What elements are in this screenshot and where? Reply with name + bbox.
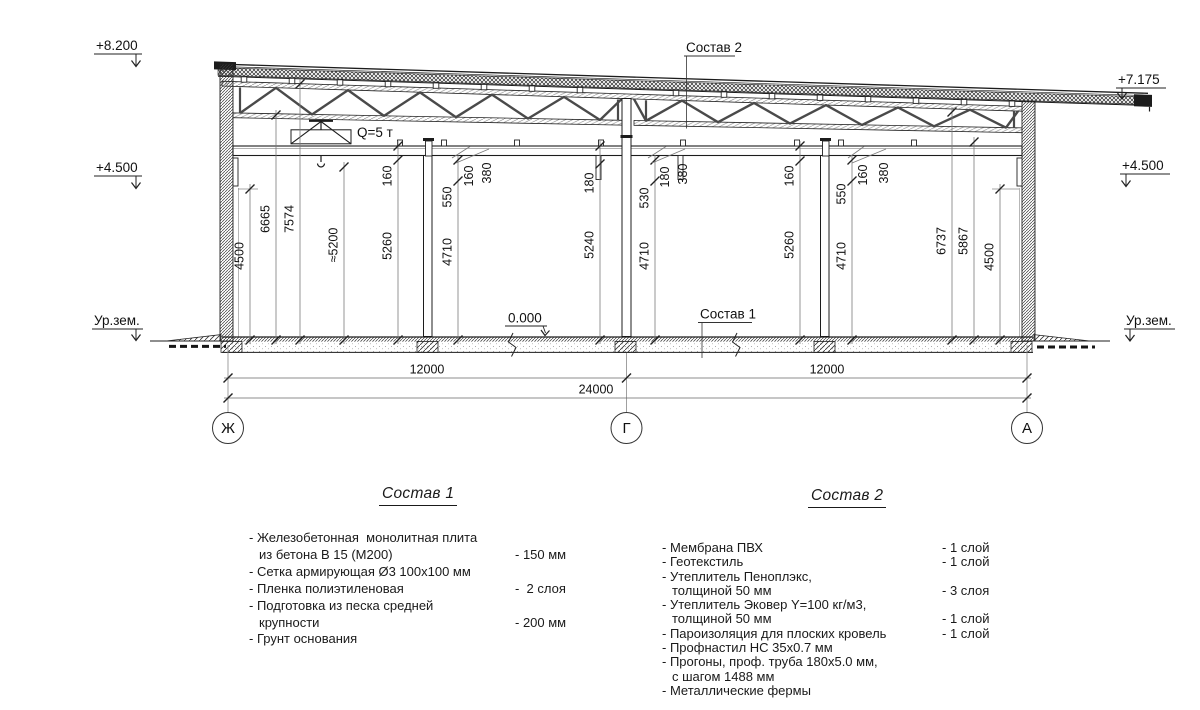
item-text: - Грунт основания (249, 631, 515, 648)
dim-label: 4710 (835, 242, 849, 270)
elevation-top-left: +8.200 (94, 38, 142, 67)
item-value: - 1 слой (942, 627, 999, 641)
item-value (515, 564, 572, 581)
list-item: толщиной 50 мм- 1 слой (662, 612, 999, 626)
axis-label-left: Ж (221, 420, 235, 437)
callout-label: Состав 1 (700, 307, 756, 322)
list-item: - Сетка армирующая Ø3 100х100 мм (249, 564, 572, 581)
list-item: - Пленка полиэтиленовая- 2 слоя (249, 581, 572, 598)
list-item: - Грунт основания (249, 631, 572, 648)
elevation-value: +4.500 (96, 160, 138, 175)
elevation-value: Ур.зем. (94, 313, 140, 328)
dim-label: 5260 (381, 232, 395, 260)
column-right (821, 156, 830, 337)
item-value (942, 598, 999, 612)
columns (423, 99, 831, 337)
item-text: - Металлические фермы (662, 684, 942, 698)
roof-edge-cap (1134, 94, 1152, 107)
list-item: - Утеплитель Пеноплэкс, (662, 570, 999, 584)
dim-label: 5260 (783, 231, 797, 259)
axis-label-right: А (1022, 420, 1032, 437)
item-value: - 200 мм (515, 615, 572, 632)
floor-slab (221, 333, 1033, 357)
sostav1-title: Состав 1 (379, 485, 457, 506)
column-left (424, 156, 433, 337)
dim-label: 160 (856, 165, 870, 186)
wall-right (1022, 101, 1035, 341)
list-item: - Утеплитель Эковер Y=100 кг/м3, (662, 598, 999, 612)
horizontal-dimensions: 12000 12000 24000 (224, 363, 1032, 403)
callout-zero-level: 0.000 (505, 311, 550, 336)
item-value: - 1 слой (942, 541, 999, 555)
item-text: - Пленка полиэтиленовая (249, 581, 515, 598)
grid-axes: Ж Г А (213, 345, 1043, 444)
list-item: - Прогоны, проф. труба 180х5.0 мм, (662, 655, 999, 669)
beam-fixings (398, 140, 917, 146)
dim-label: 5240 (583, 231, 597, 259)
dim-span-right: 12000 (810, 363, 845, 377)
sostav1-list: - Железобетонная монолитная плита из бет… (249, 530, 572, 648)
elevation-ground-right: Ур.зем. (1124, 313, 1175, 341)
dim-label: 180 (658, 167, 672, 188)
dim-total: 24000 (579, 383, 614, 397)
crane-hoist: Q=5 т (291, 121, 393, 167)
item-value (942, 570, 999, 584)
item-value: - 1 слой (942, 612, 999, 626)
item-text: толщиной 50 мм (662, 584, 942, 598)
item-value: - 3 слоя (942, 584, 999, 598)
item-text: крупности (249, 615, 515, 632)
dim-label: 7574 (283, 205, 297, 233)
elevation-value: Ур.зем. (1126, 313, 1172, 328)
dim-label: 4710 (638, 242, 652, 270)
list-item: - Профнастил НС 35х0.7 мм (662, 641, 999, 655)
dim-label: 4710 (441, 238, 455, 266)
item-text: с шагом 1488 мм (662, 670, 942, 684)
item-value (942, 684, 999, 698)
column-middle (622, 99, 631, 337)
item-value: - 2 слоя (515, 581, 572, 598)
dim-label: 4500 (233, 242, 247, 270)
dim-label: 160 (783, 166, 797, 187)
dim-label: 550 (835, 184, 849, 205)
item-text: - Профнастил НС 35х0.7 мм (662, 641, 942, 655)
item-text: - Утеплитель Эковер Y=100 кг/м3, (662, 598, 942, 612)
sostav2-list: - Мембрана ПВХ- 1 слой - Геотекстиль- 1 … (662, 541, 999, 698)
elevation-value: +7.175 (1118, 72, 1160, 87)
crane-capacity-label: Q=5 т (357, 125, 393, 140)
item-text: из бетона В 15 (М200) (249, 547, 515, 564)
list-item: из бетона В 15 (М200)- 150 мм (249, 547, 572, 564)
dim-label: 5867 (957, 227, 971, 255)
item-value (515, 530, 572, 547)
dim-label: 380 (877, 163, 891, 184)
item-value (942, 655, 999, 669)
dim-span-left: 12000 (410, 363, 445, 377)
elevation-value: +8.200 (96, 38, 138, 53)
truss-bottom-chord-right (634, 121, 1022, 133)
blueprint-page: Q=5 т Ж Г А 12000 (0, 0, 1200, 710)
elevation-value: +4.500 (1122, 158, 1164, 173)
list-item: с шагом 1488 мм (662, 670, 999, 684)
axis-label-middle: Г (622, 420, 630, 437)
dim-label: 160 (462, 166, 476, 187)
item-text: - Пароизоляция для плоских кровель (662, 627, 942, 641)
item-value (942, 641, 999, 655)
dim-label: 550 (441, 187, 455, 208)
dim-label: 380 (676, 164, 690, 185)
item-text: - Железобетонная монолитная плита (249, 530, 515, 547)
list-item: - Железобетонная монолитная плита (249, 530, 572, 547)
dim-label: 530 (638, 188, 652, 209)
item-text: - Мембрана ПВХ (662, 541, 942, 555)
elevation-ground-left: Ур.зем. (92, 313, 143, 341)
callout-label: 0.000 (508, 311, 542, 326)
sostav2-title: Состав 2 (808, 487, 886, 508)
elevation-mid-right: +4.500 (1120, 158, 1170, 187)
list-item: крупности- 200 мм (249, 615, 572, 632)
list-item: - Металлические фермы (662, 684, 999, 698)
callout-label: Состав 2 (686, 40, 742, 55)
item-text: - Геотекстиль (662, 555, 942, 569)
dim-label: 160 (381, 166, 395, 187)
dim-label: ≈5200 (327, 228, 341, 263)
list-item: - Мембрана ПВХ- 1 слой (662, 541, 999, 555)
dim-label: 380 (480, 163, 494, 184)
dim-label: 6665 (259, 205, 273, 233)
item-text: - Подготовка из песка средней (249, 598, 515, 615)
item-value: - 150 мм (515, 547, 572, 564)
section-drawing: Q=5 т Ж Г А 12000 (0, 0, 1200, 475)
wall-left (220, 64, 233, 341)
item-value (515, 631, 572, 648)
dim-label: 6737 (935, 227, 949, 255)
list-item: - Геотекстиль- 1 слой (662, 555, 999, 569)
list-item: - Подготовка из песка средней (249, 598, 572, 615)
elevation-mid-left: +4.500 (94, 160, 142, 189)
item-text: - Утеплитель Пеноплэкс, (662, 570, 942, 584)
dim-label: 4500 (983, 243, 997, 271)
item-text: толщиной 50 мм (662, 612, 942, 626)
item-text: - Сетка армирующая Ø3 100х100 мм (249, 564, 515, 581)
item-text: - Прогоны, проф. труба 180х5.0 мм, (662, 655, 942, 669)
item-value (515, 598, 572, 615)
truss-bottom-chord-left (233, 113, 622, 125)
list-item: - Пароизоляция для плоских кровель- 1 сл… (662, 627, 999, 641)
item-value: - 1 слой (942, 555, 999, 569)
item-value (942, 670, 999, 684)
list-item: толщиной 50 мм- 3 слоя (662, 584, 999, 598)
dim-label: 180 (583, 173, 597, 194)
